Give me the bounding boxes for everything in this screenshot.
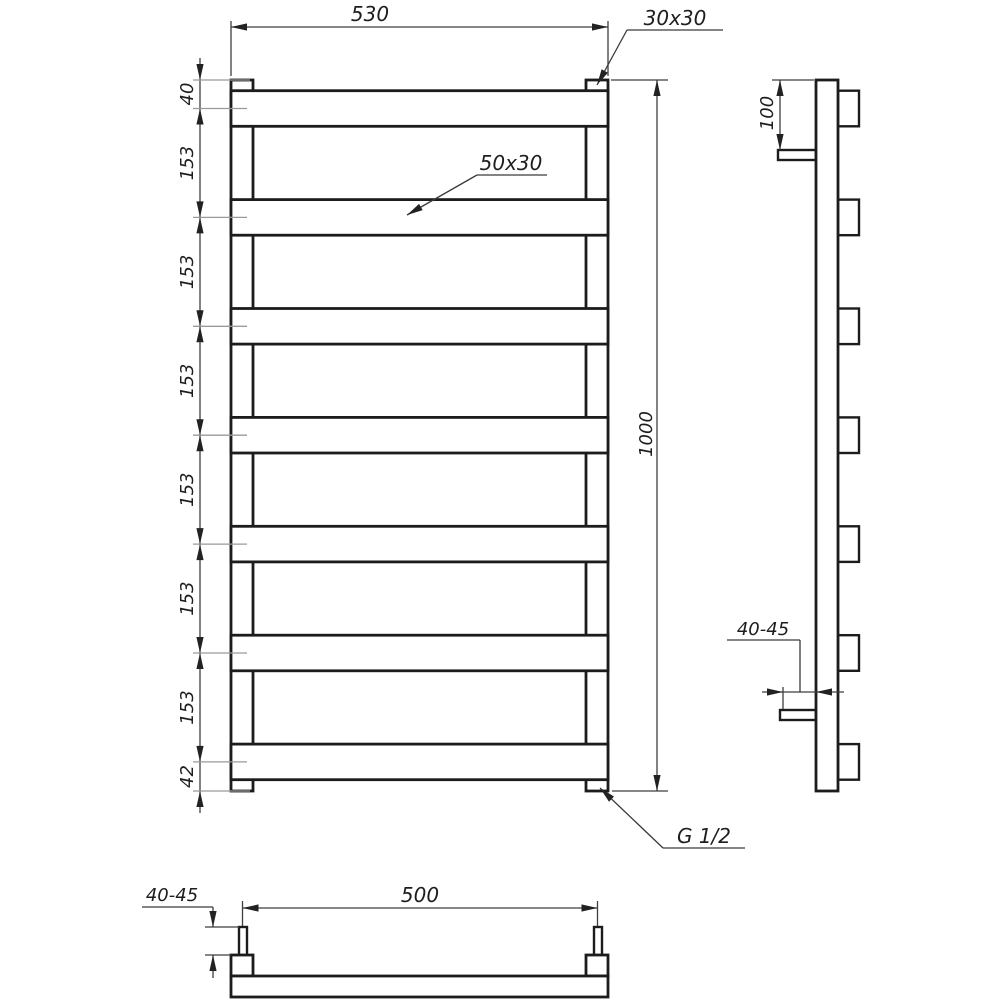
dim-arrowhead	[196, 746, 203, 762]
side-top-wall-bracket	[778, 150, 816, 160]
dim-bracket-top-offset: 100	[757, 80, 814, 150]
bar-spacing-dim-text: 153	[177, 690, 198, 724]
dim-arrowhead	[776, 80, 783, 96]
front-bar-7	[231, 744, 608, 780]
dim-arrowhead	[196, 544, 203, 560]
side-bar-2	[838, 200, 859, 236]
bracket-top-offset-dim-text: 100	[757, 96, 778, 130]
dim-arrowhead	[592, 23, 608, 30]
front-bar-3	[231, 309, 608, 345]
bar-spacing-dim-text: 153	[177, 473, 198, 507]
bottom-right-tube-section	[586, 955, 608, 976]
bar-spacing-dim-text: 153	[177, 146, 198, 180]
bottom-right-bracket-post	[594, 927, 602, 956]
bottom-view	[231, 927, 608, 997]
front-bar-6	[231, 635, 608, 671]
thread-label-text: G 1/2	[677, 824, 731, 848]
side-bar-7	[838, 744, 859, 780]
side-bottom-wall-bracket	[780, 710, 816, 720]
dim-mounting-width: 500	[243, 883, 598, 926]
overall-height-dim-text: 1000	[636, 411, 657, 457]
side-bar-5	[838, 526, 859, 562]
side-view	[778, 80, 859, 791]
dim-arrowhead	[653, 80, 660, 96]
side-bar-3	[838, 309, 859, 345]
dim-overall-width: 530	[231, 2, 608, 76]
front-bar-5	[231, 526, 608, 562]
front-bar-4	[231, 417, 608, 453]
side-bar-6	[838, 635, 859, 671]
dim-arrowhead	[776, 134, 783, 150]
dim-arrowhead	[196, 310, 203, 326]
label-thread: G 1/2	[597, 785, 745, 848]
technical-drawing-towel-rail: 530 30x30 50x30 1000	[0, 0, 1000, 1000]
dim-arrowhead	[231, 23, 247, 30]
dim-overall-height: 1000	[611, 80, 668, 791]
dim-arrowhead	[196, 528, 203, 544]
wall-distance-bottom-dim-text: 40-45	[146, 885, 198, 906]
dim-arrowhead	[196, 419, 203, 435]
wall-distance-side-dim-text: 40-45	[737, 619, 789, 640]
overall-width-dim-text: 530	[351, 2, 389, 26]
dim-arrowhead	[209, 955, 216, 971]
dim-arrowhead	[653, 775, 660, 791]
bar-profile-label-text: 50x30	[480, 151, 543, 175]
side-bar-1	[838, 91, 859, 127]
front-bar-1	[231, 91, 608, 127]
dim-arrowhead	[196, 326, 203, 342]
bar-spacing-dim-text: 153	[177, 581, 198, 615]
label-corner-tube: 30x30	[594, 6, 723, 87]
dim-arrowhead	[196, 217, 203, 233]
dim-arrowhead	[196, 653, 203, 669]
bar-spacing-dim-text: 153	[177, 255, 198, 289]
dim-arrowhead	[209, 911, 216, 927]
top-offset-dim-text: 40	[177, 83, 198, 106]
dim-arrowhead	[196, 791, 203, 807]
dim-arrowhead	[196, 435, 203, 451]
corner-tube-label-text: 30x30	[644, 6, 707, 30]
mounting-width-dim-text: 500	[401, 883, 439, 907]
drawing-svg: 530 30x30 50x30 1000	[0, 0, 1000, 1000]
dim-arrowhead	[582, 904, 598, 911]
dim-arrowhead	[767, 688, 783, 695]
bottom-left-bracket-post	[239, 927, 247, 956]
bottom-bar-section	[231, 976, 608, 997]
dim-wall-distance-bottom: 40-45	[142, 885, 239, 978]
side-vertical-tube	[816, 80, 838, 791]
side-bar-4	[838, 417, 859, 453]
dim-arrowhead	[196, 637, 203, 653]
dim-arrowhead	[196, 64, 203, 80]
front-view	[231, 80, 608, 791]
dim-arrowhead	[243, 904, 259, 911]
bar-spacing-dim-text: 153	[177, 364, 198, 398]
dim-arrowhead	[196, 109, 203, 125]
bottom-offset-dim-text: 42	[177, 765, 198, 788]
bottom-left-tube-section	[231, 955, 253, 976]
dim-arrowhead	[196, 201, 203, 217]
